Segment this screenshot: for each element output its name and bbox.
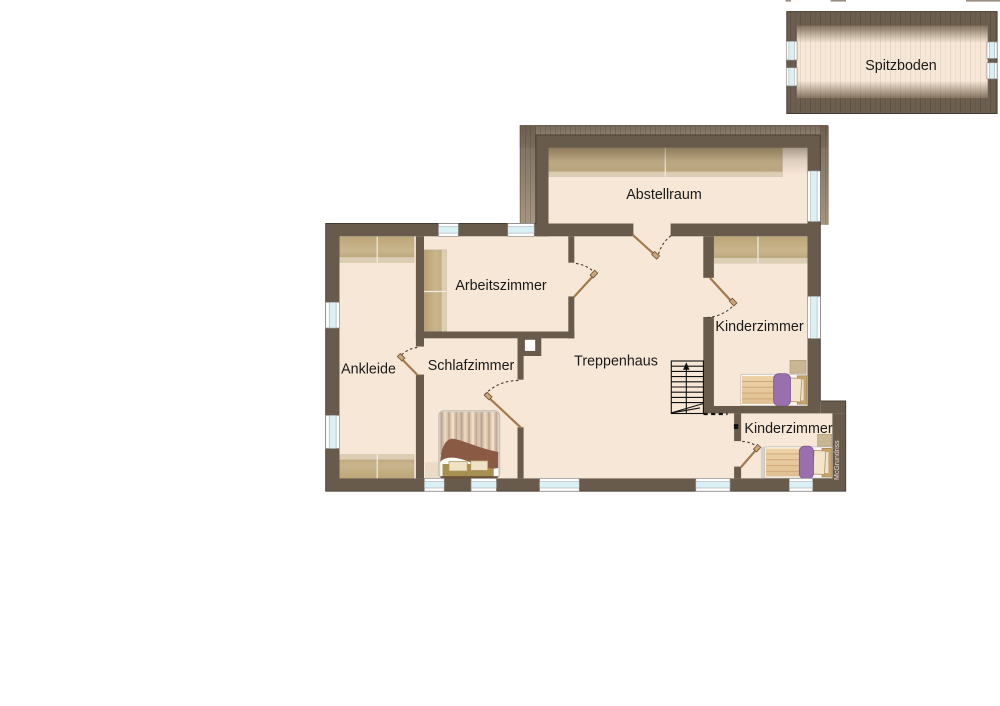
svg-text:Spitzboden: Spitzboden xyxy=(865,58,937,74)
svg-text:McGrundriss: McGrundriss xyxy=(834,440,841,480)
svg-text:Ankleide: Ankleide xyxy=(341,361,396,377)
svg-text:Arbeitszimmer: Arbeitszimmer xyxy=(455,278,547,294)
svg-text:Abstellraum: Abstellraum xyxy=(626,187,702,203)
svg-text:Kinderzimmer: Kinderzimmer xyxy=(744,421,832,437)
svg-text:Kinderzimmer: Kinderzimmer xyxy=(715,319,803,335)
svg-text:Schlafzimmer: Schlafzimmer xyxy=(428,358,515,374)
svg-text:Treppenhaus: Treppenhaus xyxy=(574,353,658,369)
